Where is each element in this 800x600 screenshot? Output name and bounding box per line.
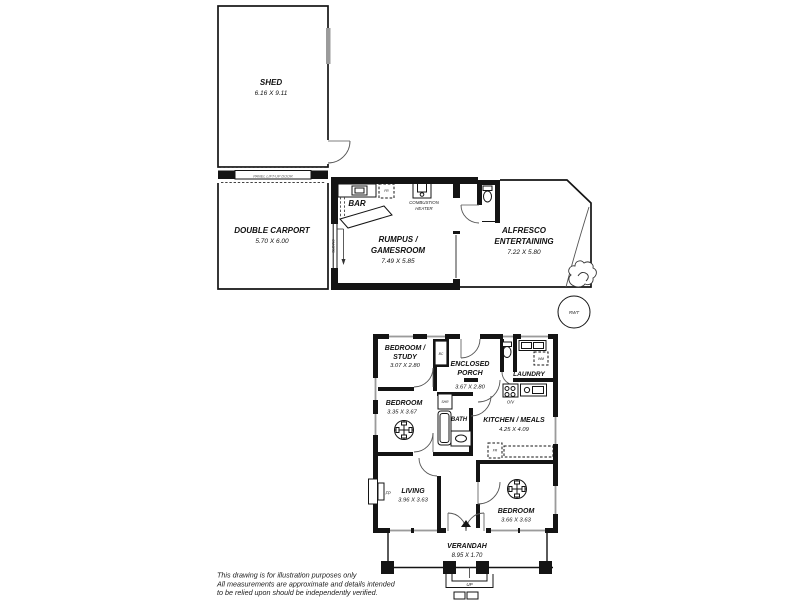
verandah-label: VERANDAH — [447, 543, 488, 550]
kitchen-label: KITCHEN / MEALS — [483, 417, 545, 424]
bar-counter-icon — [340, 206, 392, 228]
alfresco-dims: 7.22 X 5.80 — [507, 249, 541, 256]
window-icon — [375, 378, 377, 400]
porch-dims: 3.67 X 2.80 — [455, 385, 485, 391]
window-icon — [521, 336, 548, 338]
vanity-icon — [451, 431, 471, 446]
rumpus-dims: 7.49 X 5.85 — [381, 258, 415, 265]
bedroom-study-label-1: BEDROOM / — [385, 345, 427, 352]
alfresco-wc-room — [461, 180, 500, 223]
porch-label-2: PORCH — [457, 370, 483, 377]
shed-door-swing-icon — [328, 141, 350, 163]
wc-toilet-icon — [484, 191, 492, 202]
rumpus-window-icon — [455, 235, 457, 278]
shed-label: SHED — [260, 78, 282, 87]
alfresco-label-2: ENTERTAINING — [494, 237, 553, 246]
fireplace-hearth — [378, 483, 384, 500]
heater-label-2: HEATER — [415, 206, 433, 211]
ov-label: O/V — [507, 400, 515, 405]
fp-label: FP — [386, 491, 392, 496]
window-icon — [427, 336, 445, 338]
shed-door-gap — [326, 140, 331, 164]
rumpus-passage-gap — [452, 198, 462, 231]
living-dims: 3.96 X 3.63 — [398, 498, 428, 504]
panel-door-post-left — [218, 171, 235, 180]
window-icon — [389, 336, 413, 338]
step-block — [467, 592, 478, 599]
bar-fridge-label: FR — [384, 189, 389, 193]
up-label: UP — [466, 582, 472, 587]
house: BC WM O/V FR SHR FP — [369, 334, 559, 533]
kitchen-dims: 4.25 X 4.09 — [499, 427, 529, 433]
bc-label: BC — [439, 352, 444, 356]
wc-toilet-cistern — [483, 186, 492, 191]
window-icon — [375, 414, 377, 435]
fireplace-icon — [369, 479, 378, 504]
verandah-post-icon — [381, 561, 394, 574]
bedroom-study-dims: 3.07 X 2.80 — [390, 363, 420, 369]
disclaimer-line-3: to be relied upon should be independentl… — [217, 588, 378, 597]
carport-room: DOUBLE CARPORT 5.70 X 6.00 — [218, 183, 328, 289]
carport-walls — [218, 183, 328, 289]
laundry-label: LAUNDRY — [513, 371, 545, 378]
panel-door-label: PANEL LIFT-UP DOOR — [253, 175, 293, 179]
bar-label: BAR — [348, 199, 366, 208]
window-icon — [503, 336, 513, 338]
porch-label-1: ENCLOSED — [451, 361, 490, 368]
verandah: VERANDAH 8.95 X 1.70 UP — [381, 533, 553, 599]
verandah-post-icon — [443, 561, 456, 574]
alfresco-label-1: ALFRESCO — [501, 226, 547, 235]
sliding-arrow-head-icon — [342, 259, 346, 265]
window-icon — [520, 530, 545, 532]
floorplan-page: SHED 6.16 X 9.11 PANEL LIFT-UP DOOR DOUB… — [0, 0, 800, 600]
rumpus-wall-bottom — [331, 283, 460, 290]
living-label: LIVING — [401, 488, 425, 495]
window-icon — [555, 417, 557, 444]
ceiling-fan-icon — [508, 480, 527, 499]
carport-dims: 5.70 X 6.00 — [255, 238, 289, 245]
wc-wall-left — [477, 180, 482, 205]
floorplan-drawing: SHED 6.16 X 9.11 PANEL LIFT-UP DOOR DOUB… — [0, 0, 800, 600]
verandah-dims: 8.95 X 1.70 — [452, 553, 483, 559]
window-icon — [555, 486, 557, 514]
sliding-label: SLIDING — [332, 239, 336, 253]
bedroom-study-label-2: STUDY — [393, 354, 418, 361]
bedroom3-dims: 3.66 X 3.63 — [501, 518, 531, 524]
shed-room: SHED 6.16 X 9.11 — [218, 6, 350, 167]
rumpus-label-1: RUMPUS / — [378, 235, 418, 244]
kitchen-fr-label: FR — [493, 449, 498, 453]
shed-window-icon — [326, 28, 331, 64]
wc-door-swing-icon — [461, 205, 479, 223]
panel-liftup-door: PANEL LIFT-UP DOOR — [218, 168, 328, 183]
alfresco-area: ALFRESCO ENTERTAINING 7.22 X 5.80 RWT — [460, 177, 596, 328]
shr-label: SHR — [441, 400, 449, 404]
bedroom2-label: BEDROOM — [386, 400, 423, 407]
rwt-label: RWT — [569, 310, 580, 315]
bath-label: BATH — [451, 417, 468, 423]
bedroom3-label: BEDROOM — [498, 508, 535, 515]
carport-label: DOUBLE CARPORT — [234, 226, 311, 235]
verandah-post-icon — [476, 561, 489, 574]
rumpus-room: SLIDING FR BAR COMBUSTION HEATER RUMPUS … — [330, 177, 462, 290]
rumpus-wall-top — [331, 177, 460, 184]
rumpus-label-2: GAMESROOM — [371, 246, 426, 255]
alfresco-wall-stub — [460, 177, 478, 184]
entry-door-gap — [460, 334, 480, 339]
shed-dims: 6.16 X 9.11 — [255, 90, 288, 97]
panel-door-post-right — [311, 171, 328, 180]
window-icon — [491, 530, 518, 532]
disclaimer-line-1: This drawing is for illustration purpose… — [217, 571, 357, 580]
verandah-post-icon — [539, 561, 552, 574]
heater-flue — [420, 193, 424, 197]
ceiling-fan-icon — [395, 421, 414, 440]
disclaimer: This drawing is for illustration purpose… — [216, 571, 396, 598]
window-icon — [414, 530, 437, 532]
heater-firebox — [418, 183, 427, 192]
window-icon — [390, 530, 411, 532]
heater-label-1: COMBUSTION — [409, 200, 440, 205]
step-block — [454, 592, 465, 599]
wc-wall-right — [495, 180, 500, 223]
toilet-cistern — [503, 342, 512, 347]
wm-label: WM — [538, 357, 544, 361]
bedroom2-dims: 3.35 X 3.67 — [387, 410, 417, 416]
